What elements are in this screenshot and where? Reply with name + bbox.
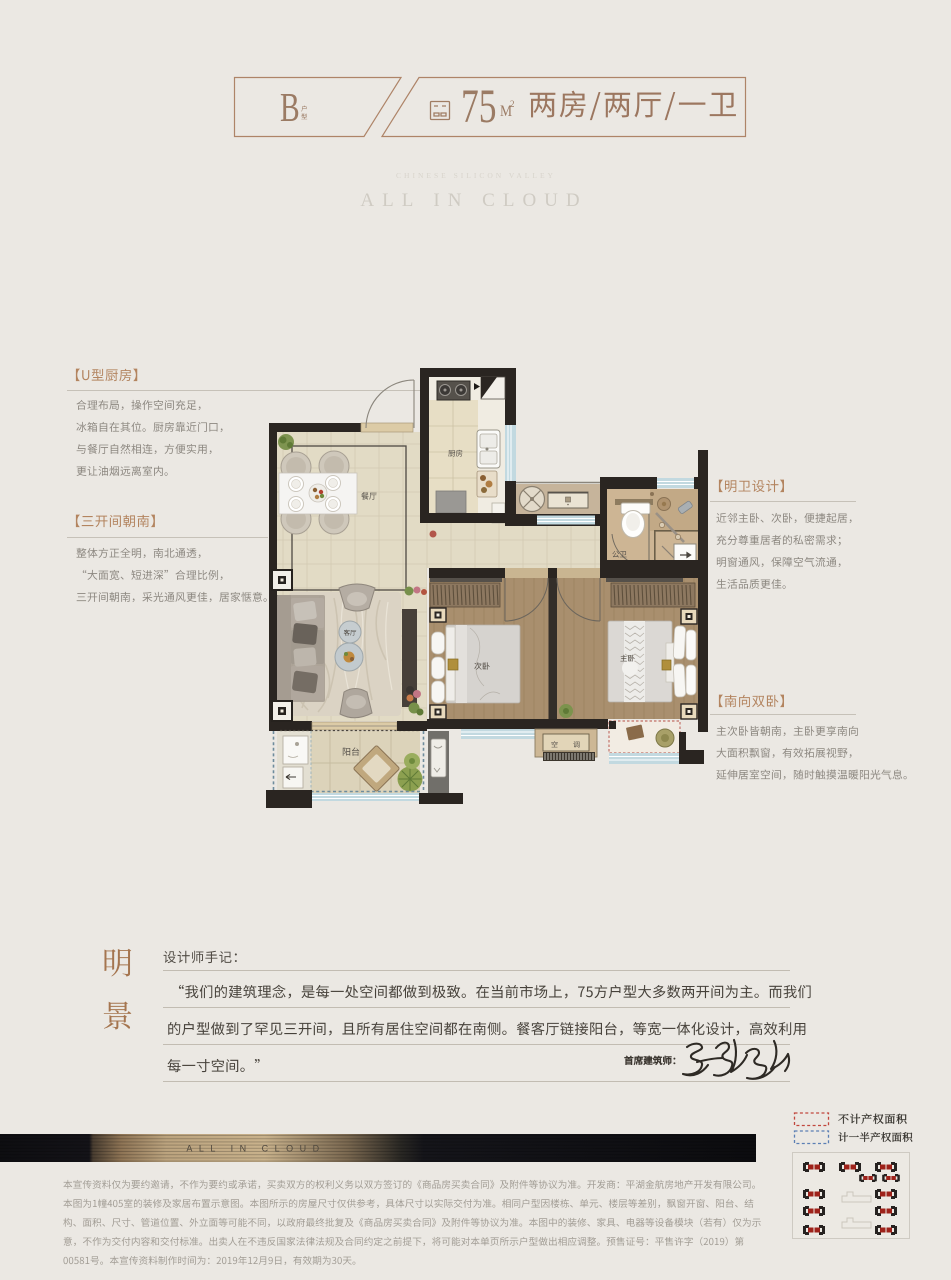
svg-text:CHINESE SILICON VALLEY: CHINESE SILICON VALLEY (396, 171, 556, 180)
svg-text:ALL IN CLOUD: ALL IN CLOUD (360, 190, 587, 211)
svg-text:ALL IN CLOUD: ALL IN CLOUD (186, 1144, 325, 1154)
svg-text:2: 2 (510, 99, 515, 109)
svg-text:75: 75 (461, 80, 497, 133)
svg-text:B: B (280, 84, 300, 130)
